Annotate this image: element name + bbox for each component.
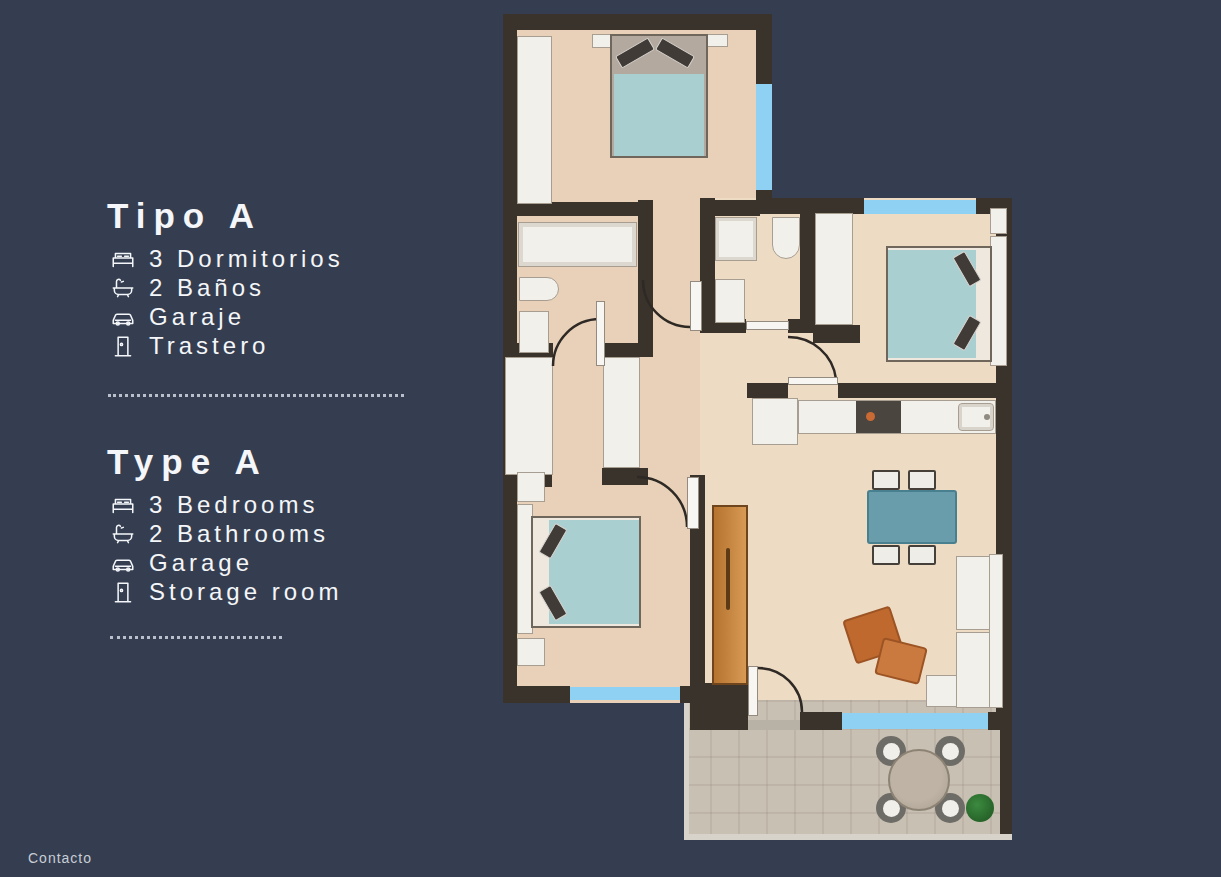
door-arc-master-corridor: [643, 280, 690, 327]
door-leaf-bath2: [746, 321, 789, 330]
door-swing-arcs: [0, 0, 1221, 877]
door-leaf-kitchen: [788, 377, 838, 385]
door-arc-kitchen: [788, 337, 836, 379]
door-leaf-entrance: [748, 666, 758, 716]
terrace-plant: [966, 794, 994, 822]
door-leaf-bedroom3: [687, 477, 699, 529]
terrace-table: [888, 749, 950, 811]
door-leaf-master-corridor: [690, 281, 702, 331]
door-leaf-bath1: [596, 301, 605, 366]
entrance-threshold: [748, 720, 800, 730]
door-arc-entrance: [758, 668, 802, 712]
floor-plan: [0, 0, 1221, 877]
door-arc-bedroom3: [637, 477, 687, 527]
slide: Tipo A 3 Dormitorios 2 Baños Garaje Tras…: [0, 0, 1221, 877]
door-arc-bath1: [553, 319, 600, 366]
